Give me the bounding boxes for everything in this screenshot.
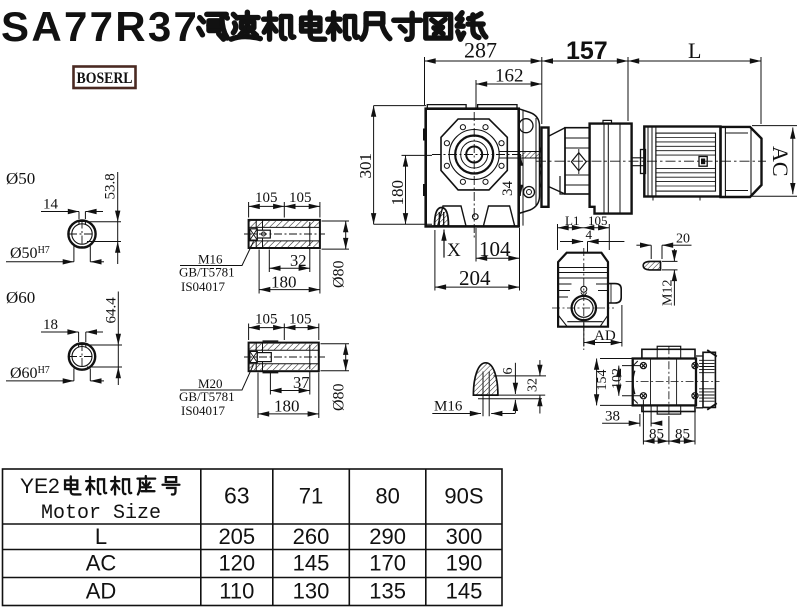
svg-text:170: 170 xyxy=(369,551,406,576)
svg-text:18: 18 xyxy=(43,317,58,333)
svg-text:IS04017: IS04017 xyxy=(181,279,226,294)
svg-text:145: 145 xyxy=(446,579,483,604)
svg-text:Ø50H7: Ø50H7 xyxy=(10,245,50,262)
svg-text:37: 37 xyxy=(293,373,310,392)
svg-text:20: 20 xyxy=(676,232,690,247)
svg-text:204: 204 xyxy=(459,266,491,290)
svg-text:157: 157 xyxy=(566,37,608,65)
svg-text:260: 260 xyxy=(293,524,330,549)
svg-text:14: 14 xyxy=(43,197,59,213)
svg-text:80: 80 xyxy=(375,484,399,509)
svg-text:63: 63 xyxy=(224,483,250,509)
svg-text:102: 102 xyxy=(610,368,625,389)
svg-text:180: 180 xyxy=(271,273,297,292)
svg-text:M16: M16 xyxy=(434,399,463,415)
svg-text:180: 180 xyxy=(388,180,407,206)
svg-text:154: 154 xyxy=(595,370,610,391)
svg-text:205: 205 xyxy=(218,524,255,549)
svg-text:M12: M12 xyxy=(661,280,676,306)
svg-text:GB/T5781: GB/T5781 xyxy=(179,265,235,280)
svg-text:287: 287 xyxy=(464,38,497,63)
svg-text:120: 120 xyxy=(218,551,255,576)
svg-text:135: 135 xyxy=(369,579,406,604)
svg-text:85: 85 xyxy=(649,426,664,442)
svg-text:105: 105 xyxy=(289,190,312,206)
svg-text:Ø80: Ø80 xyxy=(331,260,348,288)
svg-text:L1: L1 xyxy=(565,213,579,228)
svg-text:AD: AD xyxy=(594,328,616,344)
svg-text:X: X xyxy=(447,240,461,261)
svg-text:IS04017: IS04017 xyxy=(181,403,226,418)
svg-text:AD: AD xyxy=(86,579,117,604)
svg-text:Motor Size: Motor Size xyxy=(41,502,161,525)
svg-text:6: 6 xyxy=(501,368,516,375)
svg-text:105: 105 xyxy=(255,190,278,206)
svg-text:145: 145 xyxy=(293,551,330,576)
svg-text:38: 38 xyxy=(605,409,620,425)
svg-text:32: 32 xyxy=(290,251,307,270)
svg-text:53.8: 53.8 xyxy=(103,173,119,199)
svg-text:32: 32 xyxy=(526,378,541,392)
svg-text:Ø60: Ø60 xyxy=(6,288,35,307)
svg-text:64.4: 64.4 xyxy=(104,297,120,324)
svg-text:290: 290 xyxy=(369,524,406,549)
svg-text:SA77R37: SA77R37 xyxy=(1,3,199,50)
svg-text:300: 300 xyxy=(446,524,483,549)
svg-text:GB/T5781: GB/T5781 xyxy=(179,389,235,404)
svg-text:Ø50: Ø50 xyxy=(6,169,35,188)
svg-text:BOSERL: BOSERL xyxy=(77,70,133,87)
svg-text:YE2: YE2 xyxy=(20,475,60,498)
svg-text:130: 130 xyxy=(293,579,330,604)
svg-text:105: 105 xyxy=(588,213,608,228)
svg-text:Ø60H7: Ø60H7 xyxy=(10,365,50,382)
svg-text:301: 301 xyxy=(356,153,375,179)
svg-text:90S: 90S xyxy=(444,484,483,509)
svg-text:162: 162 xyxy=(495,66,524,87)
svg-text:34: 34 xyxy=(500,181,516,197)
svg-text:AC: AC xyxy=(768,146,793,177)
svg-text:85: 85 xyxy=(675,426,690,442)
svg-text:Ø80: Ø80 xyxy=(331,383,348,411)
svg-text:180: 180 xyxy=(274,397,300,416)
svg-text:L: L xyxy=(95,524,107,549)
svg-text:4: 4 xyxy=(586,227,593,242)
svg-text:104: 104 xyxy=(479,237,511,261)
svg-text:AC: AC xyxy=(86,551,117,576)
svg-text:L: L xyxy=(688,38,701,63)
svg-text:105: 105 xyxy=(255,312,278,328)
svg-text:190: 190 xyxy=(446,551,483,576)
svg-text:105: 105 xyxy=(289,312,312,328)
svg-text:110: 110 xyxy=(219,579,254,604)
svg-text:71: 71 xyxy=(299,484,323,509)
